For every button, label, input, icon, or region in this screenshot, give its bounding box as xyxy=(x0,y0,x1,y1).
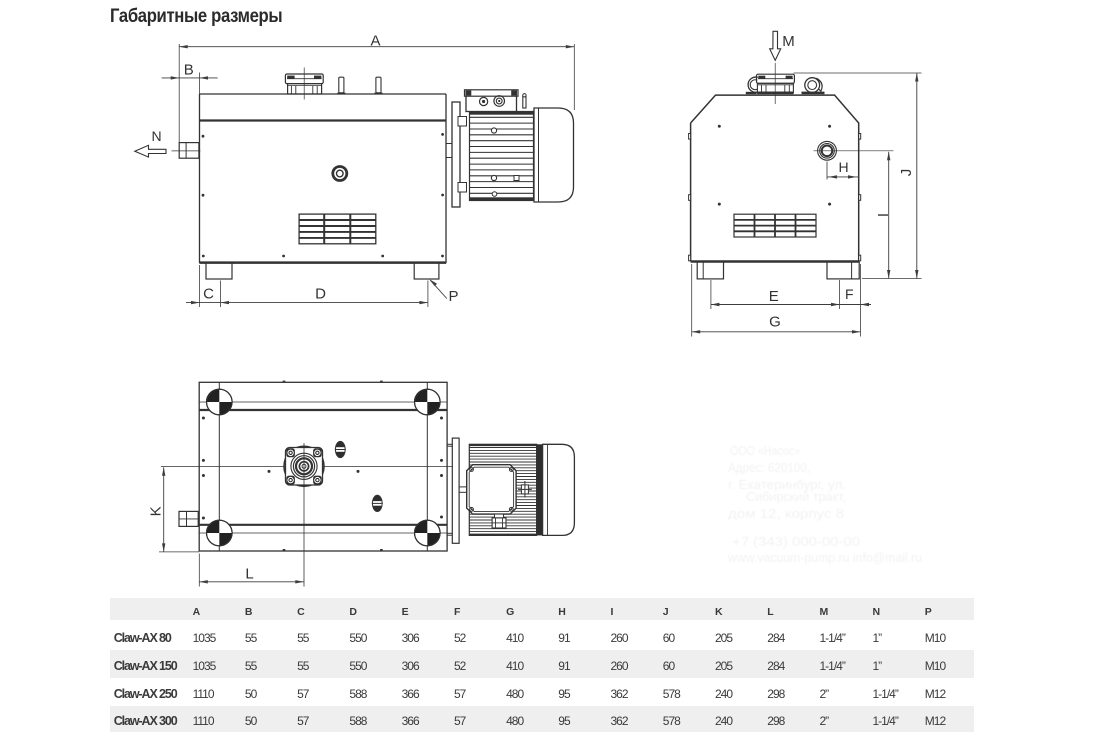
svg-text:Адрес: 620100,: Адрес: 620100, xyxy=(728,460,810,475)
svg-text:L: L xyxy=(245,566,253,583)
svg-text:I: I xyxy=(875,213,892,217)
svg-text:H: H xyxy=(838,159,848,175)
svg-text:P: P xyxy=(448,288,458,305)
svg-text:A: A xyxy=(370,33,380,50)
svg-text:M: M xyxy=(782,33,795,50)
svg-text:+7 (343) 000-00-00: +7 (343) 000-00-00 xyxy=(732,534,860,549)
svg-text:N: N xyxy=(151,128,161,144)
svg-text:K: K xyxy=(147,506,164,516)
svg-text:www.vacuum-pump.ru info@mail.: www.vacuum-pump.ru info@mail.ru xyxy=(727,550,922,565)
svg-text:дом 12, корпус 8: дом 12, корпус 8 xyxy=(728,506,844,521)
svg-text:F: F xyxy=(845,286,854,302)
svg-text:J: J xyxy=(898,169,915,177)
svg-text:ООО «Насос»: ООО «Насос» xyxy=(730,443,800,458)
svg-text:Сибирский тракт,: Сибирский тракт, xyxy=(746,489,846,504)
svg-text:C: C xyxy=(203,286,214,303)
svg-text:G: G xyxy=(769,314,781,331)
svg-text:D: D xyxy=(315,286,326,303)
svg-text:E: E xyxy=(769,288,779,305)
svg-text:B: B xyxy=(184,62,194,79)
